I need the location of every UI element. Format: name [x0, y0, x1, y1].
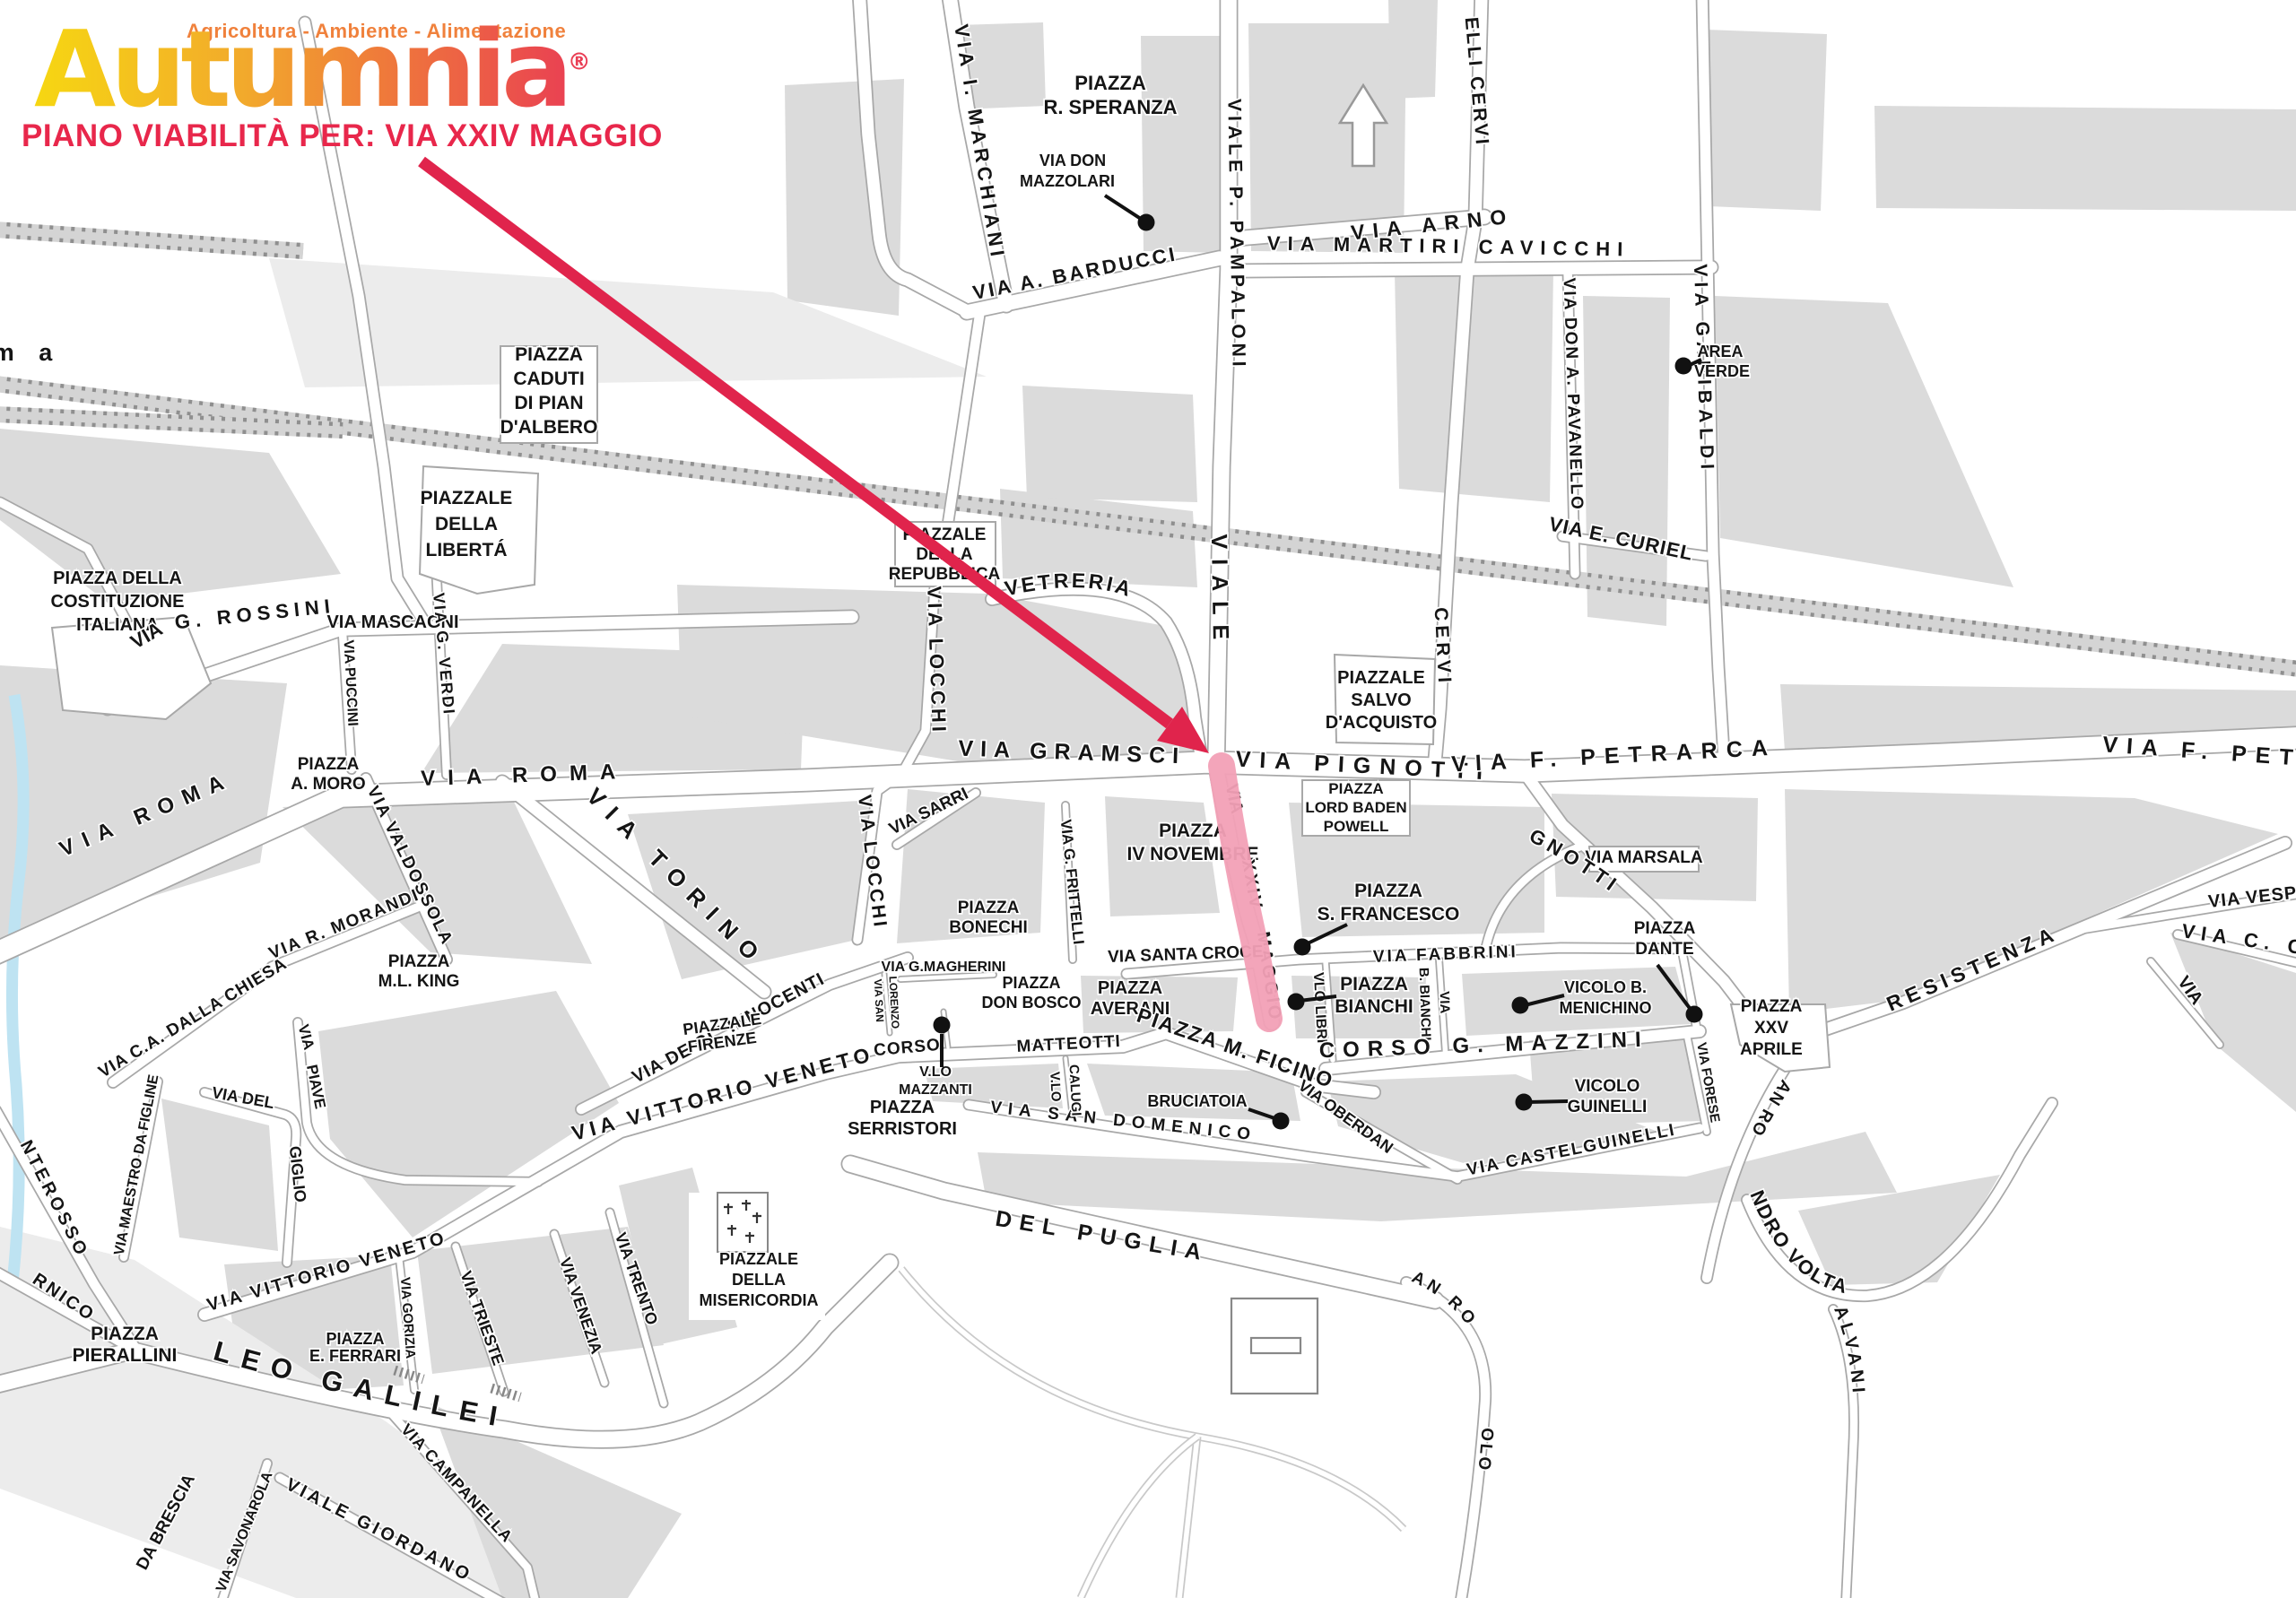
location-dot [1675, 358, 1692, 375]
label-piazza: PIAZZA [1354, 881, 1422, 901]
label-b-bianchi: B. BIANCHI [1416, 968, 1434, 1041]
label-d-albero: D'ALBERO [500, 417, 598, 438]
building-outline [1231, 1298, 1318, 1394]
label-piazza: PIAZZA [298, 755, 360, 774]
location-dot [1516, 1094, 1533, 1111]
label-piazza: PIAZZA [1074, 72, 1146, 94]
label-via-vespu: VIA VESPU [2207, 882, 2296, 912]
label-piazza: PIAZZA [388, 952, 450, 971]
label-via-maestro-da-figline: VIA MAESTRO DA FIGLINE [112, 1073, 162, 1257]
label-m-a: m a [0, 339, 61, 366]
label-piazza: PIAZZA [1098, 978, 1162, 998]
label-piazza: PIAZZA [1741, 997, 1803, 1016]
label-della: DELLA [732, 1271, 786, 1289]
label-via-san: VIA SAN [872, 978, 887, 1022]
label-via-g-frittelli: VIA G. FRITTELLI [1057, 819, 1088, 945]
label-piazza: PIAZZA [1340, 974, 1408, 994]
label-a-moro: A. MORO [291, 775, 365, 794]
label-don-bosco: DON BOSCO [981, 994, 1081, 1012]
location-dot [1138, 214, 1155, 231]
label-d-acquisto: D'ACQUISTO [1326, 713, 1437, 733]
label-piazza: PIAZZA [1003, 974, 1061, 992]
label-via-marsala: VIA MARSALA [1585, 848, 1703, 867]
label-vicolo: VICOLO [1575, 1077, 1640, 1096]
label-via-g-verdi: VIA G. VERDI [430, 592, 458, 716]
label-bianchi: BIANCHI [1335, 996, 1413, 1017]
label-piazza: PIAZZA [1159, 821, 1227, 841]
label-via-g-magherini: VIA G.MAGHERINI [882, 960, 1006, 975]
map-stage: m aVIA I. MARCHIANIPIAZZAR. SPERANZAVIA … [0, 0, 2296, 1598]
label-v-lo: V.LO [919, 1064, 952, 1080]
label-bruciatoia: BRUCIATOIA [1147, 1092, 1247, 1110]
label-libert: LIBERTÁ [426, 540, 508, 560]
cemetery-icon [717, 1193, 768, 1252]
label-dante: DANTE [1635, 940, 1693, 959]
label-piazza: PIAZZA [958, 899, 1020, 917]
label-menichino: MENICHINO [1560, 999, 1652, 1017]
label-della: DELLA [435, 514, 498, 534]
label-piazza: PIAZZA [1634, 919, 1696, 938]
label-piazza: PIAZZA [1328, 780, 1383, 797]
label-di-pian: DI PIAN [514, 393, 583, 413]
callout-line [1528, 1101, 1568, 1102]
label-piazza-della: PIAZZA DELLA [53, 569, 182, 588]
label-viale: VIALE [1206, 534, 1233, 649]
label-serristori: SERRISTORI [848, 1119, 957, 1139]
label-mazzolari: MAZZOLARI [1020, 172, 1115, 190]
label-piazza: PIAZZA [91, 1324, 159, 1344]
label-r-speranza: R. SPERANZA [1043, 96, 1177, 118]
label-g-rossini: G. ROSSINI [174, 595, 336, 634]
label-e-ferrari: E. FERRARI [309, 1347, 401, 1365]
location-dot [1294, 939, 1311, 956]
label-calugi: CALUGI [1066, 1064, 1084, 1116]
label-costituzione: COSTITUZIONE [51, 592, 185, 612]
label-cervi: CERVI [1431, 607, 1456, 688]
label-via-fabbrini: VIA FABBRINI [1373, 942, 1519, 967]
label-via-don: VIA DON [1039, 152, 1106, 169]
label-salvo: SALVO [1351, 690, 1411, 710]
location-dot [1273, 1113, 1290, 1130]
label-lord-baden: LORD BADEN [1305, 799, 1406, 816]
label-via-don-a-pavanello: VIA DON A. PAVANELLO [1559, 277, 1586, 511]
label-m-l-king: M.L. KING [378, 972, 460, 991]
label-verde: VERDE [1694, 362, 1750, 380]
label-bonechi: BONECHI [949, 918, 1028, 937]
location-dot [1288, 994, 1305, 1011]
label-piazza: PIAZZA [515, 344, 583, 365]
label-piazzale: PIAZZALE [1337, 668, 1425, 688]
label-mazzanti: MAZZANTI [899, 1082, 972, 1098]
label-piazzale: PIAZZALE [421, 488, 513, 508]
location-dot [1512, 997, 1529, 1014]
label-guinelli: GUINELLI [1568, 1098, 1648, 1116]
label-via: VIA [1437, 991, 1453, 1014]
label-vicolo-b: VICOLO B. [1564, 978, 1647, 996]
label-pierallini: PIERALLINI [73, 1345, 178, 1366]
label-via-c-a-dalla-chiesa: VIA C.A. DALLA CHIESA [95, 954, 291, 1081]
location-dot [934, 1017, 951, 1034]
label-misericordia: MISERICORDIA [699, 1291, 818, 1309]
city-map: m aVIA I. MARCHIANIPIAZZAR. SPERANZAVIA … [0, 0, 2296, 1598]
callout-line [1105, 195, 1144, 221]
label-v-lo: V.LO [1047, 1072, 1064, 1103]
label-piazza: PIAZZA [326, 1330, 385, 1348]
label-powell: POWELL [1324, 818, 1389, 835]
park-paths [901, 1269, 1404, 1598]
label-caduti: CADUTI [513, 369, 584, 389]
label-via-martiri-cavicchi: VIA MARTIRI CAVICCHI [1267, 231, 1631, 260]
label-piazzale: PIAZZALE [719, 1250, 798, 1268]
label-piazza: PIAZZA [870, 1098, 935, 1117]
label-aprile: APRILE [1740, 1040, 1803, 1059]
label-area: AREA [1697, 343, 1743, 360]
label-xxv: XXV [1754, 1019, 1788, 1038]
location-dot [1686, 1006, 1703, 1023]
label-s-francesco: S. FRANCESCO [1318, 904, 1460, 925]
